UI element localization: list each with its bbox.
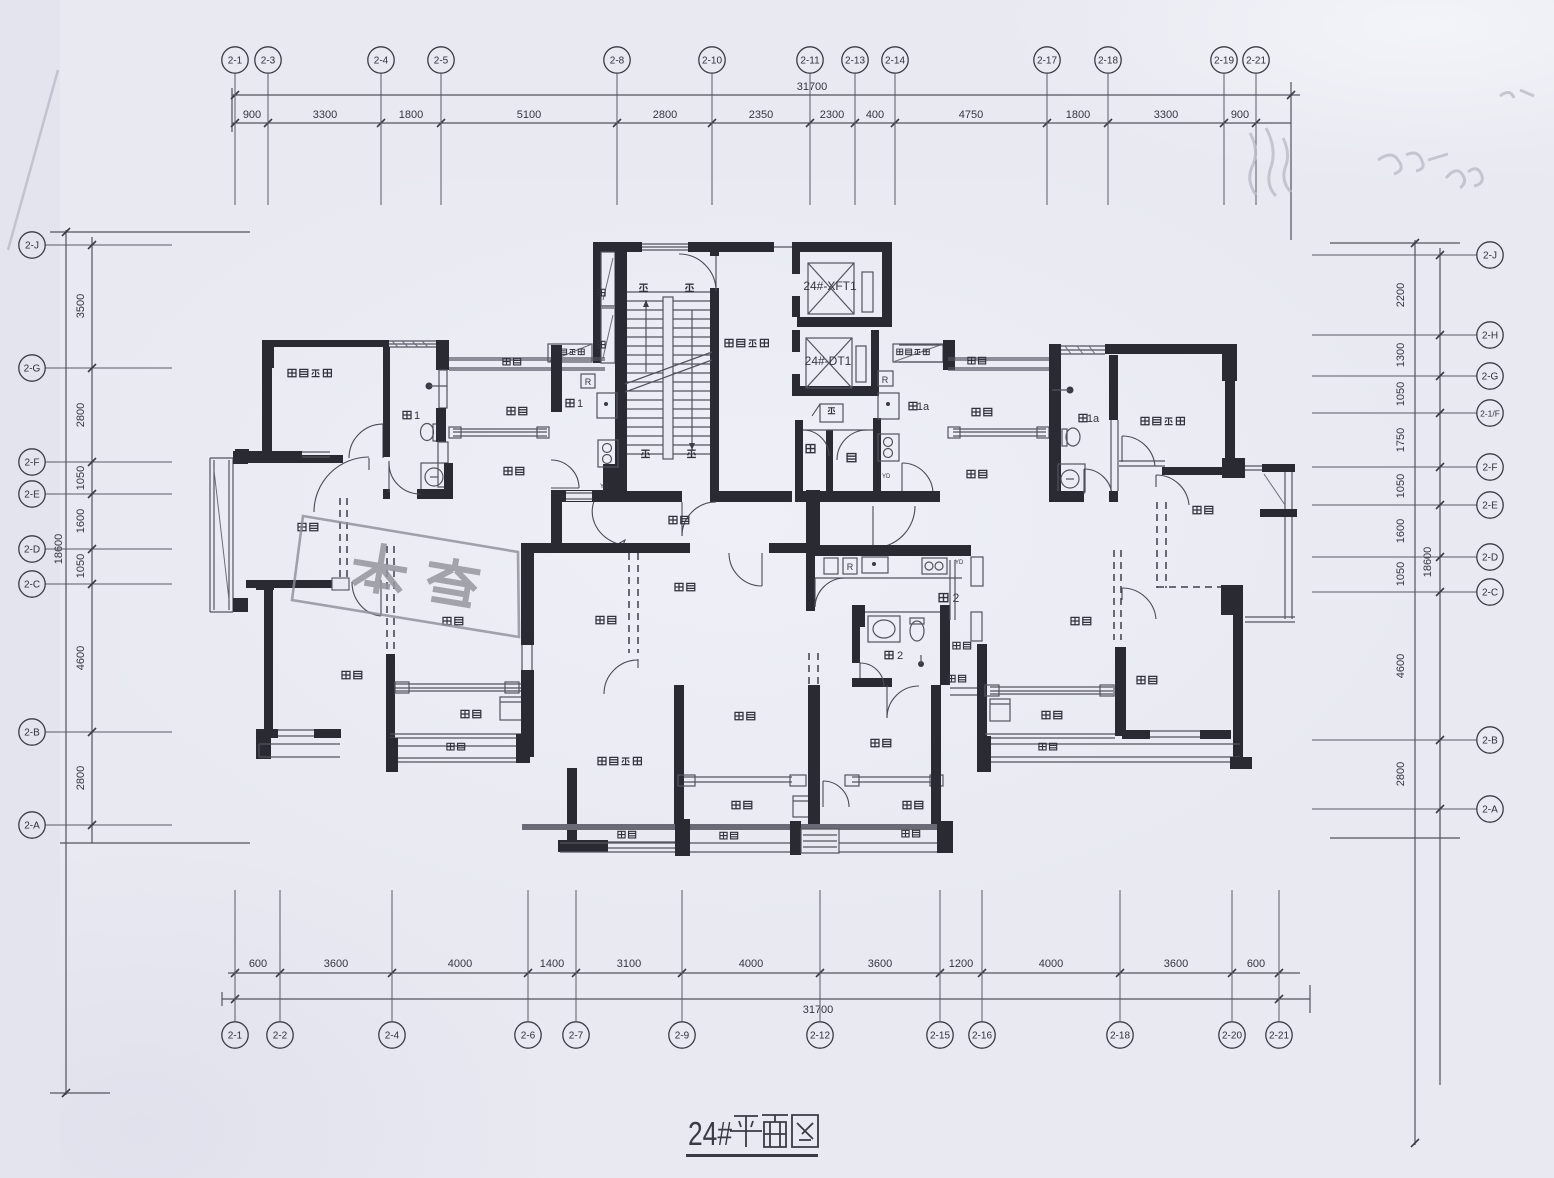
svg-text:2-4: 2-4: [385, 1031, 400, 1042]
svg-text:2-7: 2-7: [569, 1031, 584, 1042]
svg-text:YD: YD: [955, 560, 964, 566]
svg-text:2-4: 2-4: [374, 56, 389, 67]
svg-text:400: 400: [866, 109, 884, 121]
svg-text:2350: 2350: [749, 109, 773, 121]
svg-text:2-E: 2-E: [24, 490, 40, 501]
svg-text:5100: 5100: [517, 109, 541, 121]
svg-text:2-21: 2-21: [1269, 1031, 1289, 1042]
svg-text:2-D: 2-D: [24, 545, 40, 556]
svg-text:2800: 2800: [653, 109, 677, 121]
svg-text:2-15: 2-15: [930, 1031, 950, 1042]
svg-text:3600: 3600: [324, 958, 348, 970]
svg-text:2-19: 2-19: [1214, 56, 1234, 67]
svg-text:2-J: 2-J: [25, 241, 39, 252]
svg-text:2-17: 2-17: [1037, 56, 1057, 67]
svg-text:4750: 4750: [959, 109, 983, 121]
svg-text:2-A: 2-A: [1482, 805, 1498, 816]
svg-text:1050: 1050: [1395, 382, 1407, 406]
svg-text:YD: YD: [882, 474, 891, 480]
svg-text:2-10: 2-10: [702, 56, 722, 67]
svg-text:3500: 3500: [75, 294, 87, 318]
svg-text:1050: 1050: [75, 466, 87, 490]
svg-text:2-18: 2-18: [1098, 56, 1118, 67]
svg-text:4000: 4000: [1039, 958, 1063, 970]
svg-text:1050: 1050: [1395, 474, 1407, 498]
svg-text:2-21: 2-21: [1246, 56, 1266, 67]
svg-text:2-D: 2-D: [1482, 553, 1498, 564]
svg-text:600: 600: [1247, 958, 1265, 970]
svg-text:1050: 1050: [1395, 562, 1407, 586]
svg-text:4000: 4000: [448, 958, 472, 970]
svg-text:600: 600: [249, 958, 267, 970]
svg-text:31700: 31700: [803, 1004, 834, 1016]
svg-text:R: R: [847, 562, 854, 572]
svg-text:1800: 1800: [1066, 109, 1090, 121]
svg-text:2800: 2800: [75, 403, 87, 427]
svg-text:R: R: [882, 375, 889, 385]
svg-text:1300: 1300: [1395, 343, 1407, 367]
svg-text:3300: 3300: [1154, 109, 1178, 121]
svg-text:2-2: 2-2: [273, 1031, 288, 1042]
svg-text:4600: 4600: [75, 646, 87, 670]
svg-text:1800: 1800: [399, 109, 423, 121]
svg-text:2-F: 2-F: [25, 458, 40, 469]
svg-text:2-8: 2-8: [610, 56, 625, 67]
svg-text:1200: 1200: [949, 958, 973, 970]
svg-text:2-C: 2-C: [1482, 588, 1498, 599]
svg-text:2-E: 2-E: [1482, 501, 1498, 512]
svg-text:3100: 3100: [617, 958, 641, 970]
svg-text:1600: 1600: [1395, 519, 1407, 543]
svg-text:2-14: 2-14: [885, 56, 905, 67]
svg-text:2-20: 2-20: [1222, 1031, 1242, 1042]
svg-text:2800: 2800: [75, 766, 87, 790]
svg-text:1: 1: [414, 410, 420, 422]
svg-text:2-6: 2-6: [521, 1031, 536, 1042]
svg-text:2-1: 2-1: [228, 56, 243, 67]
svg-text:2-9: 2-9: [675, 1031, 690, 1042]
svg-text:2-18: 2-18: [1110, 1031, 1130, 1042]
svg-text:2-16: 2-16: [972, 1031, 992, 1042]
svg-text:2200: 2200: [1395, 283, 1407, 307]
svg-text:2-B: 2-B: [24, 728, 40, 739]
svg-text:3600: 3600: [1164, 958, 1188, 970]
svg-text:3300: 3300: [313, 109, 337, 121]
svg-text:2-12: 2-12: [810, 1031, 830, 1042]
svg-text:2: 2: [897, 650, 903, 662]
svg-text:2-G: 2-G: [24, 364, 41, 375]
svg-text:1: 1: [577, 398, 583, 410]
svg-text:2-C: 2-C: [24, 580, 40, 591]
svg-text:2-3: 2-3: [261, 56, 276, 67]
svg-text:1400: 1400: [540, 958, 564, 970]
svg-text:2-H: 2-H: [1482, 331, 1498, 342]
svg-text:1a: 1a: [1087, 413, 1100, 425]
svg-text:R: R: [585, 377, 592, 387]
svg-text:2-G: 2-G: [1482, 372, 1499, 383]
svg-text:2-1/F: 2-1/F: [1480, 409, 1500, 419]
svg-text:2: 2: [953, 591, 960, 605]
svg-text:900: 900: [243, 109, 261, 121]
svg-text:1600: 1600: [75, 509, 87, 533]
svg-text:3600: 3600: [868, 958, 892, 970]
svg-text:2-A: 2-A: [24, 821, 40, 832]
svg-text:24#-DT1: 24#-DT1: [805, 354, 852, 368]
svg-text:YD: YD: [600, 484, 609, 490]
svg-text:24#-XFT1: 24#-XFT1: [803, 279, 857, 293]
svg-text:1050: 1050: [75, 554, 87, 578]
svg-text:1a: 1a: [917, 401, 930, 413]
svg-text:2-5: 2-5: [434, 56, 449, 67]
svg-text:2-11: 2-11: [800, 56, 820, 67]
svg-text:2800: 2800: [1395, 762, 1407, 786]
svg-text:1750: 1750: [1395, 428, 1407, 452]
svg-text:18600: 18600: [1422, 547, 1434, 578]
svg-text:2-B: 2-B: [1482, 736, 1498, 747]
svg-text:4000: 4000: [739, 958, 763, 970]
svg-text:2-F: 2-F: [1483, 463, 1498, 474]
svg-text:2-1: 2-1: [228, 1031, 243, 1042]
svg-text:900: 900: [1231, 109, 1249, 121]
svg-text:2-J: 2-J: [1483, 251, 1497, 262]
svg-text:31700: 31700: [797, 81, 828, 93]
svg-text:2300: 2300: [820, 109, 844, 121]
svg-text:4600: 4600: [1395, 654, 1407, 678]
svg-text:2-13: 2-13: [845, 56, 865, 67]
svg-text:24#: 24#: [688, 1115, 733, 1152]
